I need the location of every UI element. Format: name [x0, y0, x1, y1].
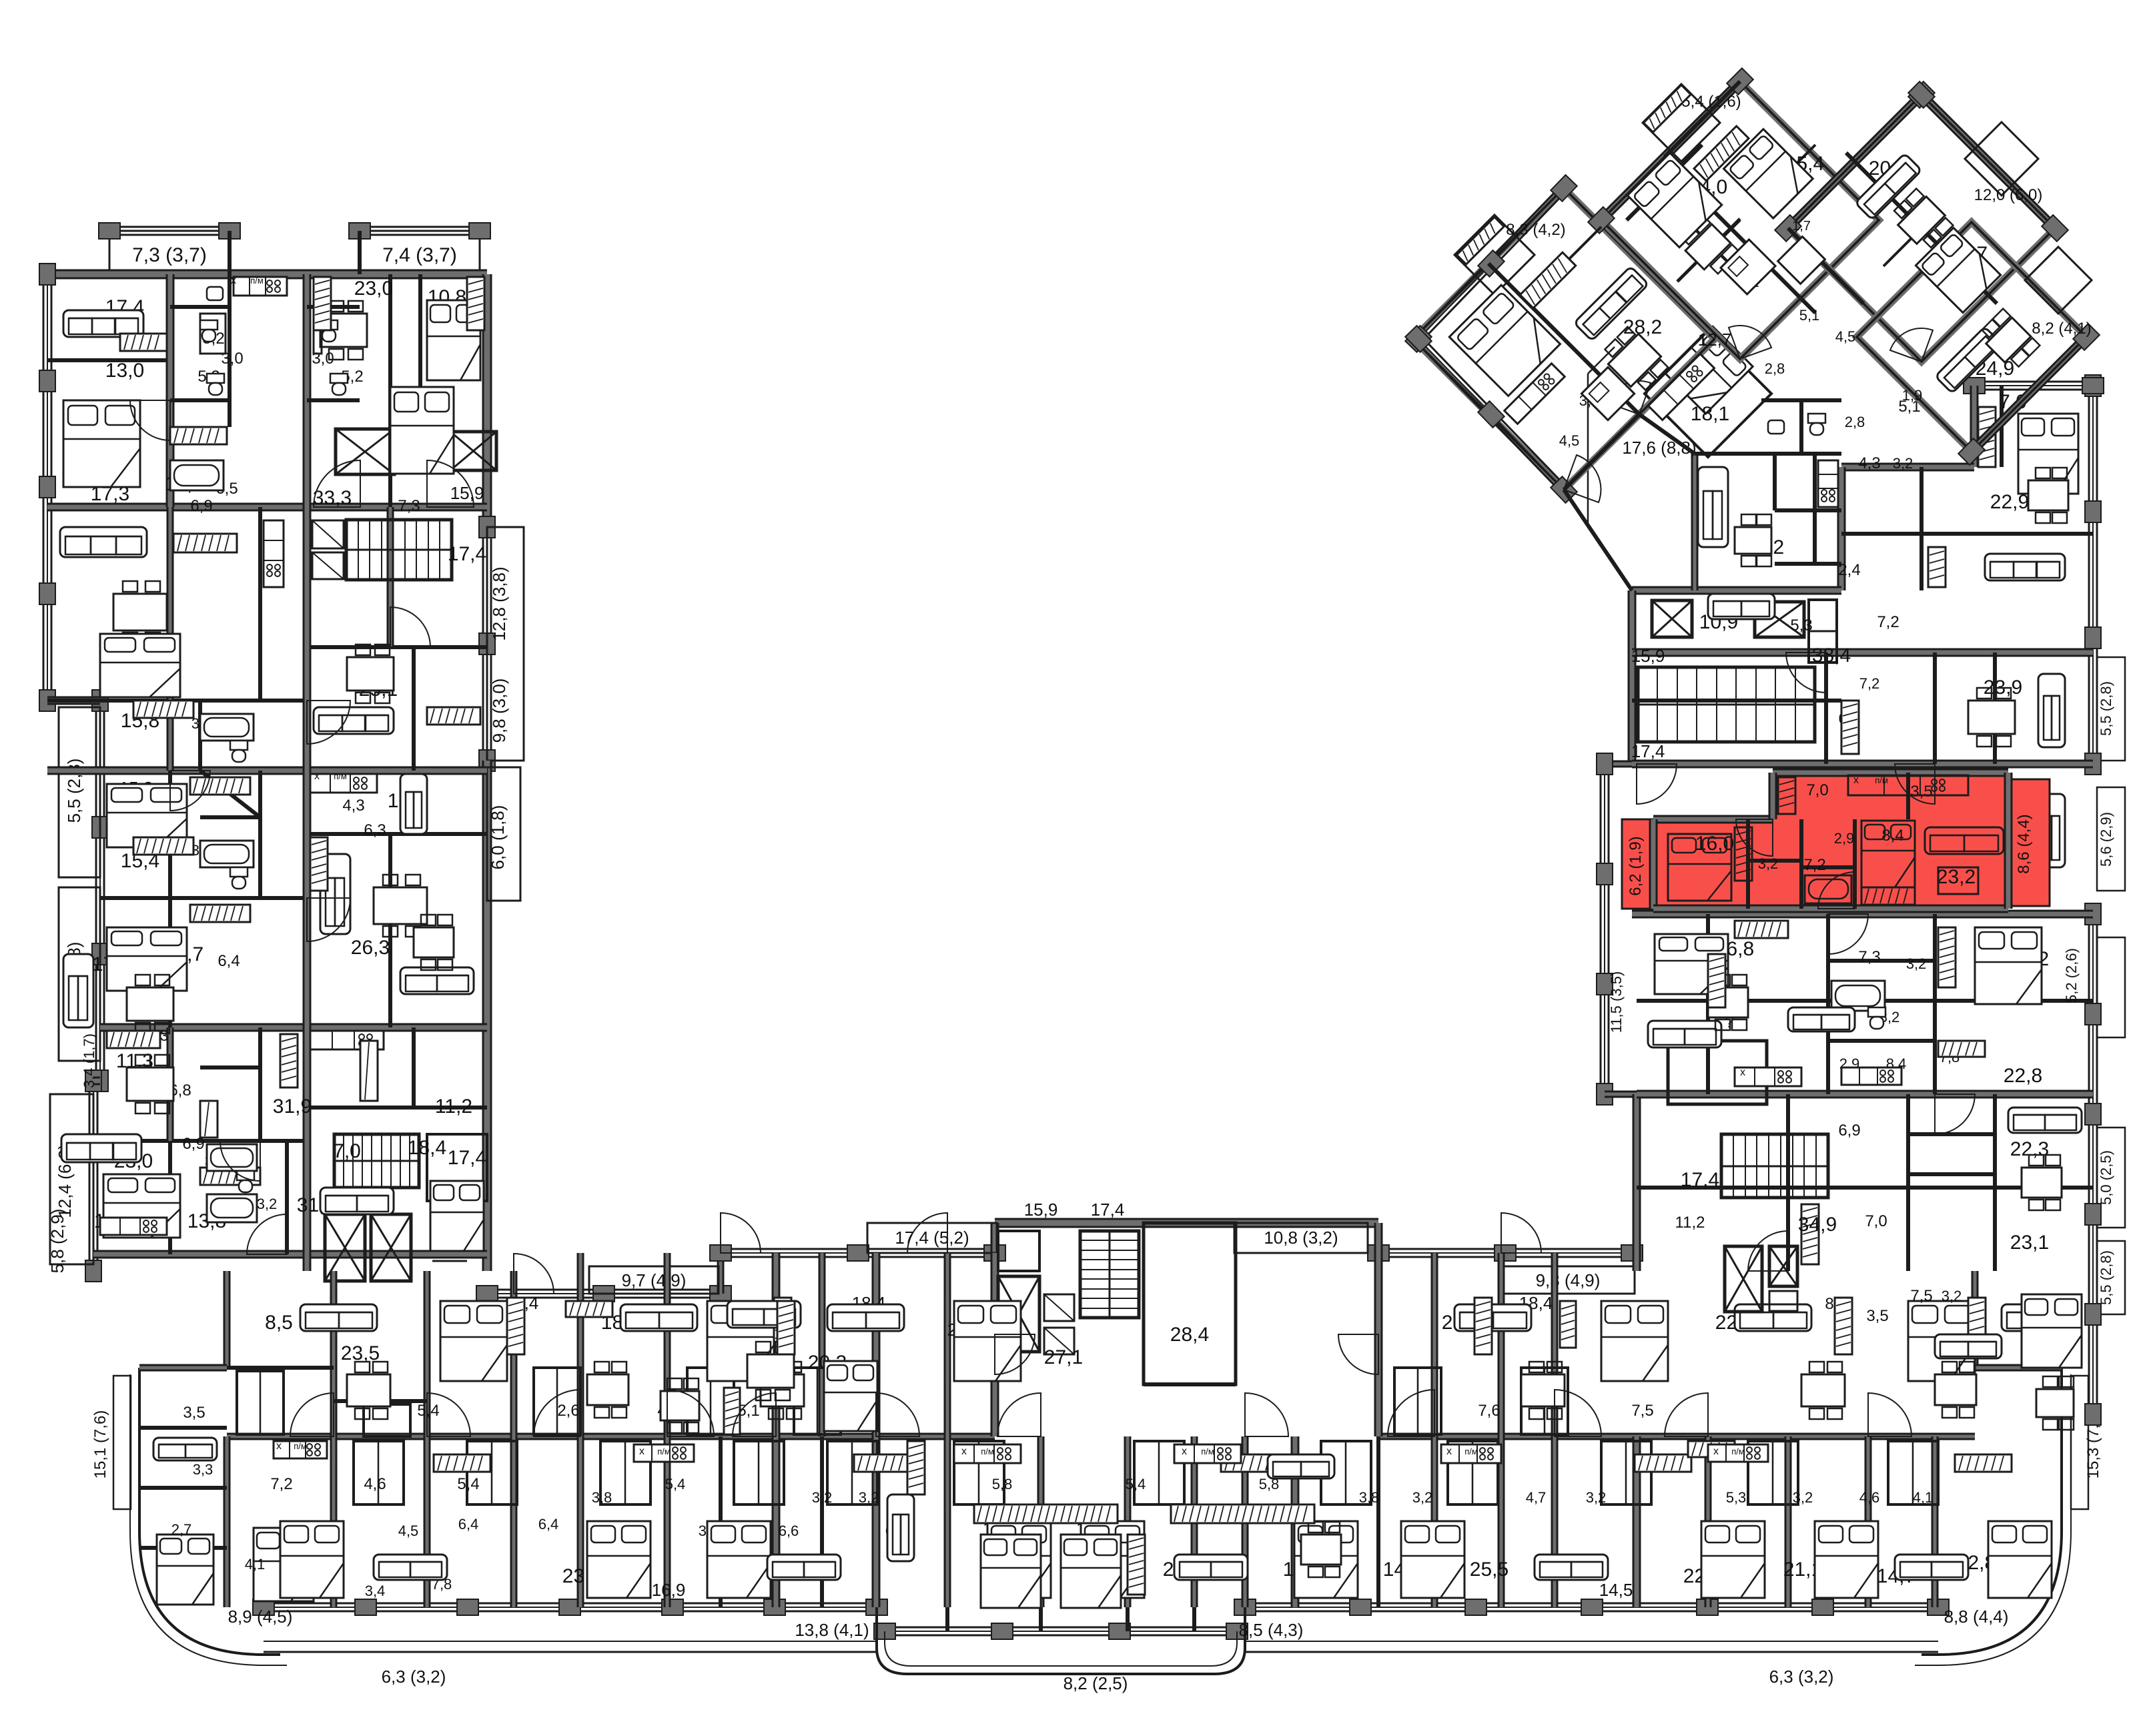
svg-text:x: x	[1446, 1446, 1452, 1457]
svg-text:2,9: 2,9	[1834, 830, 1855, 847]
svg-text:4,6: 4,6	[364, 1475, 386, 1493]
svg-text:5,5 (2,8): 5,5 (2,8)	[2098, 1250, 2114, 1305]
svg-text:38,4: 38,4	[1812, 644, 1851, 667]
svg-text:3,2: 3,2	[1893, 455, 1913, 472]
svg-text:11,2: 11,2	[435, 1096, 472, 1118]
svg-text:x: x	[1713, 1446, 1719, 1457]
svg-text:4,5: 4,5	[398, 1523, 419, 1539]
svg-text:7,2: 7,2	[270, 1475, 292, 1493]
svg-text:2,7: 2,7	[171, 1521, 192, 1538]
svg-text:6,3: 6,3	[364, 821, 386, 839]
svg-text:33,3: 33,3	[313, 487, 352, 509]
svg-text:2,4: 2,4	[1838, 561, 1860, 579]
svg-text:4,5: 4,5	[1559, 432, 1580, 449]
svg-text:7,0: 7,0	[333, 1140, 361, 1162]
svg-text:7,3: 7,3	[1858, 948, 1880, 966]
svg-text:7,0: 7,0	[1865, 1212, 1887, 1230]
svg-text:4,7: 4,7	[1526, 1489, 1547, 1506]
svg-text:22,8: 22,8	[2004, 1065, 2042, 1087]
svg-text:6,2 (1,9): 6,2 (1,9)	[1627, 836, 1645, 895]
svg-text:6,0 (1,8): 6,0 (1,8)	[488, 805, 508, 870]
svg-text:5,4: 5,4	[665, 1476, 686, 1492]
svg-text:3,3: 3,3	[193, 1461, 213, 1478]
svg-text:2,8: 2,8	[1765, 360, 1785, 377]
svg-text:7,4 (3,7): 7,4 (3,7)	[382, 244, 457, 266]
svg-text:4,1: 4,1	[245, 1556, 266, 1573]
svg-text:7,2: 7,2	[1803, 856, 1825, 874]
svg-text:3,2: 3,2	[1758, 855, 1779, 872]
svg-text:17,4: 17,4	[448, 1147, 486, 1169]
svg-text:8,2 (2,5): 8,2 (2,5)	[1063, 1673, 1128, 1693]
svg-text:34,9: 34,9	[1798, 1214, 1837, 1236]
svg-text:8,6 (4,4): 8,6 (4,4)	[2015, 814, 2033, 873]
svg-text:26,3: 26,3	[351, 937, 390, 959]
svg-text:27,1: 27,1	[1044, 1346, 1083, 1368]
svg-text:23,0: 23,0	[354, 278, 393, 300]
svg-text:14,5: 14,5	[1599, 1580, 1633, 1600]
svg-text:3,2: 3,2	[1412, 1489, 1433, 1506]
svg-text:5,8: 5,8	[992, 1476, 1013, 1492]
svg-text:10,8 (3,2): 10,8 (3,2)	[1264, 1228, 1338, 1248]
svg-text:x: x	[639, 1446, 645, 1457]
svg-text:x: x	[1740, 1067, 1745, 1078]
svg-text:x: x	[276, 1440, 282, 1452]
svg-text:5,6 (2,9): 5,6 (2,9)	[2098, 812, 2114, 867]
svg-text:x: x	[1182, 1446, 1187, 1457]
svg-text:3,5: 3,5	[1866, 1307, 1888, 1325]
svg-text:x: x	[1853, 775, 1859, 786]
svg-text:3,0: 3,0	[312, 350, 334, 368]
svg-text:17,4: 17,4	[1091, 1200, 1125, 1220]
svg-text:28,4: 28,4	[1170, 1324, 1209, 1346]
svg-text:23,2: 23,2	[1937, 866, 1976, 888]
svg-text:8,3 (4,2): 8,3 (4,2)	[1506, 221, 1565, 239]
svg-text:17,4: 17,4	[1681, 1169, 1719, 1191]
svg-text:1,9: 1,9	[1902, 387, 1923, 404]
svg-text:6,3 (3,2): 6,3 (3,2)	[382, 1667, 446, 1687]
svg-text:5,8 (2,9): 5,8 (2,9)	[47, 1209, 67, 1274]
svg-text:8,9 (4,5): 8,9 (4,5)	[228, 1607, 293, 1627]
svg-text:п/м: п/м	[1875, 775, 1888, 785]
svg-text:3,2: 3,2	[1906, 955, 1927, 972]
svg-text:4,3: 4,3	[342, 797, 364, 815]
svg-text:11,2: 11,2	[1675, 1214, 1705, 1232]
svg-text:3,4: 3,4	[365, 1583, 386, 1599]
svg-text:6,6: 6,6	[779, 1523, 799, 1539]
svg-text:16,0: 16,0	[1695, 833, 1734, 855]
svg-text:5,5 (2,8): 5,5 (2,8)	[2098, 681, 2114, 736]
svg-text:12,7: 12,7	[1698, 330, 1732, 350]
svg-text:7,0: 7,0	[1806, 781, 1828, 799]
svg-text:x: x	[231, 275, 236, 286]
svg-text:п/м: п/м	[1201, 1446, 1214, 1456]
svg-text:8,8 (4,4): 8,8 (4,4)	[1944, 1607, 2009, 1627]
svg-text:13,8 (4,1): 13,8 (4,1)	[795, 1620, 869, 1640]
svg-text:5,3: 5,3	[1790, 616, 1812, 634]
svg-text:3,2: 3,2	[1586, 1489, 1607, 1506]
svg-text:8,2 (4,1): 8,2 (4,1)	[2032, 320, 2091, 338]
svg-text:3,2: 3,2	[859, 1489, 879, 1506]
svg-text:x: x	[961, 1446, 967, 1457]
svg-text:6,3 (3,2): 6,3 (3,2)	[1769, 1667, 1834, 1687]
svg-text:3,5: 3,5	[183, 1404, 205, 1422]
svg-text:7,3: 7,3	[398, 497, 420, 515]
svg-text:3,2: 3,2	[1793, 1489, 1813, 1506]
svg-text:п/м: п/м	[1731, 1446, 1745, 1456]
svg-text:17,4 (5,2): 17,4 (5,2)	[895, 1228, 969, 1248]
svg-text:18,1: 18,1	[1691, 403, 1729, 425]
svg-text:3,2: 3,2	[1942, 1288, 1962, 1304]
svg-text:п/м: п/м	[250, 276, 264, 286]
svg-text:п/м: п/м	[334, 771, 347, 781]
svg-text:11,5 (3,5): 11,5 (3,5)	[1608, 971, 1625, 1033]
svg-text:3,8: 3,8	[592, 1489, 612, 1506]
svg-text:7,2: 7,2	[1877, 613, 1899, 631]
svg-text:23,1: 23,1	[2010, 1232, 2049, 1254]
svg-text:15,9: 15,9	[1024, 1200, 1058, 1220]
svg-text:31,9: 31,9	[273, 1096, 312, 1118]
svg-text:25,5: 25,5	[1470, 1559, 1509, 1581]
svg-text:7,2: 7,2	[1859, 675, 1880, 692]
svg-text:4,1: 4,1	[1913, 1489, 1934, 1506]
svg-text:5,4: 5,4	[457, 1475, 479, 1493]
svg-text:17,4: 17,4	[448, 543, 486, 565]
svg-text:5,0 (2,5): 5,0 (2,5)	[2098, 1150, 2114, 1205]
svg-text:9,8 (4,9): 9,8 (4,9)	[1536, 1270, 1601, 1290]
svg-text:5,3: 5,3	[1726, 1489, 1747, 1506]
svg-text:15,9: 15,9	[1631, 646, 1665, 666]
svg-text:8,5 (4,3): 8,5 (4,3)	[1239, 1620, 1304, 1640]
svg-text:1,7: 1,7	[1792, 219, 1811, 234]
svg-text:7,5: 7,5	[1910, 1287, 1932, 1305]
svg-text:2,6: 2,6	[557, 1402, 579, 1420]
svg-text:15,1 (7,6): 15,1 (7,6)	[91, 1410, 109, 1479]
svg-text:п/м: п/м	[294, 1441, 307, 1451]
svg-text:4,3: 4,3	[1858, 454, 1880, 472]
svg-text:3,2: 3,2	[812, 1489, 833, 1506]
svg-text:5,4: 5,4	[1126, 1476, 1146, 1492]
svg-text:6,9: 6,9	[190, 497, 212, 515]
svg-text:3,2: 3,2	[257, 1196, 278, 1212]
svg-text:5,2 (2,6): 5,2 (2,6)	[2063, 948, 2080, 1003]
svg-text:3,4 (1,7): 3,4 (1,7)	[81, 1033, 97, 1088]
svg-text:18,4: 18,4	[408, 1137, 446, 1159]
svg-text:6,4: 6,4	[458, 1516, 479, 1533]
svg-text:6,9: 6,9	[1838, 1122, 1860, 1140]
svg-text:п/м: п/м	[981, 1446, 994, 1456]
svg-text:2,8: 2,8	[1845, 414, 1865, 430]
svg-text:7,3 (3,7): 7,3 (3,7)	[132, 244, 207, 266]
svg-text:9,8 (3,0): 9,8 (3,0)	[489, 679, 509, 743]
svg-text:x: x	[314, 771, 320, 782]
svg-text:5,4: 5,4	[417, 1402, 439, 1420]
svg-text:6,4: 6,4	[538, 1516, 559, 1533]
svg-text:4,5: 4,5	[1835, 328, 1856, 345]
svg-text:4,6: 4,6	[1859, 1489, 1880, 1506]
svg-text:8,5: 8,5	[265, 1312, 293, 1334]
svg-text:9,7 (4,9): 9,7 (4,9)	[622, 1270, 687, 1290]
svg-text:п/м: п/м	[1464, 1446, 1478, 1456]
svg-text:16,9: 16,9	[652, 1580, 686, 1600]
svg-text:5,1: 5,1	[1799, 307, 1820, 324]
svg-text:15,9: 15,9	[450, 483, 484, 503]
svg-text:6,4: 6,4	[218, 952, 240, 970]
svg-text:3,0: 3,0	[221, 350, 243, 368]
svg-text:12,8 (3,8): 12,8 (3,8)	[489, 566, 509, 640]
svg-text:3,8: 3,8	[1359, 1489, 1380, 1506]
svg-text:7,5: 7,5	[1631, 1402, 1653, 1420]
svg-text:12,0 (6,0): 12,0 (6,0)	[1974, 186, 2043, 204]
svg-text:13,0: 13,0	[105, 360, 144, 382]
svg-text:7,6: 7,6	[1478, 1402, 1500, 1420]
svg-text:п/м: п/м	[657, 1446, 671, 1456]
svg-text:17,4: 17,4	[1631, 741, 1665, 761]
